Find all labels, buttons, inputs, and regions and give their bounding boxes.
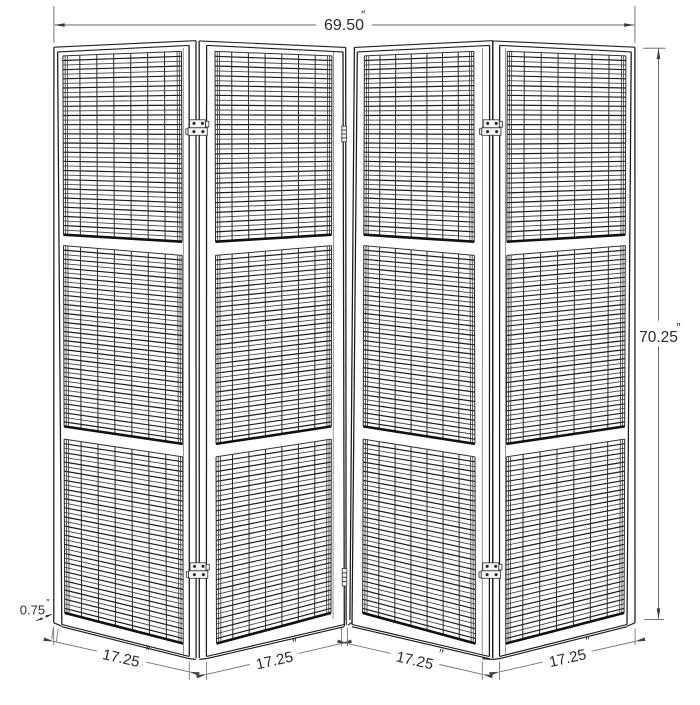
svg-text:0.75: 0.75	[20, 603, 45, 618]
svg-text:″: ″	[676, 321, 681, 335]
svg-text:69.50: 69.50	[324, 17, 364, 34]
svg-text:70.25: 70.25	[639, 329, 678, 346]
